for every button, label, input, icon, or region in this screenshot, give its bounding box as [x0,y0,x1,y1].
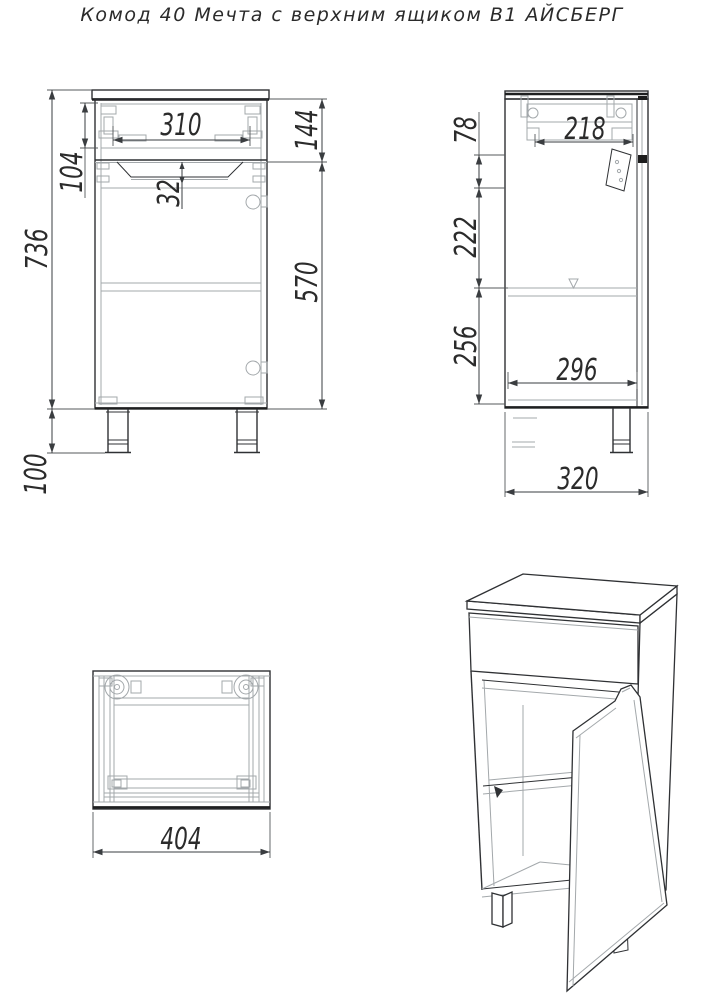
top-inner-panels [99,676,264,802]
dim-label-32: 32 [153,179,187,206]
dim-front-104: 104 [56,103,98,198]
front-legs [105,409,260,453]
dim-label-736: 736 [21,228,55,269]
dim-side-320: 320 [505,412,648,497]
dim-front-736: 736 [21,90,95,409]
dim-label-104: 104 [56,151,90,192]
iso-drawer-front [469,613,638,684]
technical-drawing: 310 104 144 570 [0,0,704,995]
dim-label-78: 78 [450,116,484,143]
front-view: 310 104 144 570 [20,90,327,495]
top-drawer-rollers [105,675,258,699]
iso-front-left-leg [492,892,512,927]
dim-label-570: 570 [291,261,325,302]
dim-front-570: 570 [267,162,327,409]
dim-label-320: 320 [557,463,598,497]
dim-side-222: 222 [450,188,508,288]
iso-view [467,574,677,991]
dim-front-144: 144 [267,99,327,162]
side-view: 218 78 222 256 [450,91,648,497]
front-hinge-bottom [246,361,260,375]
dim-front-100: 100 [20,409,105,495]
side-shelf-mark [569,279,578,288]
top-leg-mounts [99,678,264,789]
dim-side-296: 296 [508,354,637,389]
drawing-sheet: Комод 40 Мечта с верхним ящиком В1 АЙСБЕ… [0,0,704,995]
dim-label-144: 144 [291,109,325,150]
dim-label-100: 100 [20,453,54,494]
dim-side-78: 78 [450,112,505,188]
front-hinge-top [246,195,260,209]
dim-top-404: 404 [93,812,270,858]
dim-label-256: 256 [450,325,484,366]
dim-label-218: 218 [564,113,605,147]
front-handle-recess [117,162,243,177]
dim-label-222: 222 [450,216,484,257]
side-door-edge [606,149,631,191]
dim-front-310: 310 [113,109,250,146]
dim-label-404: 404 [160,823,201,857]
side-legs [512,408,633,453]
side-interior [505,279,648,407]
dim-label-296: 296 [556,354,597,388]
dim-label-310: 310 [160,109,201,143]
dim-side-256: 256 [450,288,505,404]
top-view: 404 [93,671,270,858]
dim-front-32: 32 [153,162,187,209]
